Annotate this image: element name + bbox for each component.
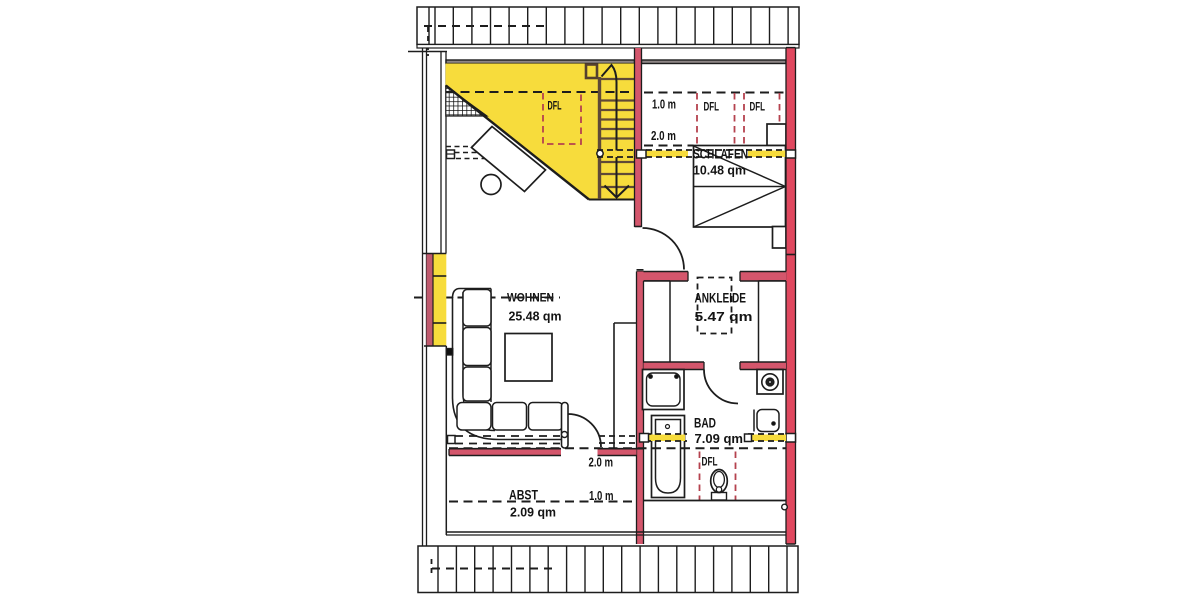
svg-text:2.0 m: 2.0 m xyxy=(589,456,614,470)
svg-text:1.0 m: 1.0 m xyxy=(652,98,676,112)
svg-text:BAD: BAD xyxy=(694,415,716,431)
svg-text:SCHLAFEN: SCHLAFEN xyxy=(693,147,748,162)
svg-text:DFL: DFL xyxy=(704,100,720,114)
svg-text:1.0 m: 1.0 m xyxy=(589,489,614,503)
svg-text:25.48 qm: 25.48 qm xyxy=(509,310,562,324)
svg-text:DFL: DFL xyxy=(702,455,718,469)
svg-text:7.09 qm: 7.09 qm xyxy=(695,431,744,446)
svg-text:10.48 qm: 10.48 qm xyxy=(693,163,746,178)
svg-text:2.0 m: 2.0 m xyxy=(651,129,676,143)
svg-text:DFL: DFL xyxy=(548,99,562,113)
svg-text:2.09 qm: 2.09 qm xyxy=(510,505,556,520)
svg-text:5.47 qm: 5.47 qm xyxy=(695,309,753,324)
svg-text:ABST: ABST xyxy=(509,488,539,503)
svg-text:DFL: DFL xyxy=(750,100,766,114)
svg-text:ANKLEIDE: ANKLEIDE xyxy=(695,291,747,306)
